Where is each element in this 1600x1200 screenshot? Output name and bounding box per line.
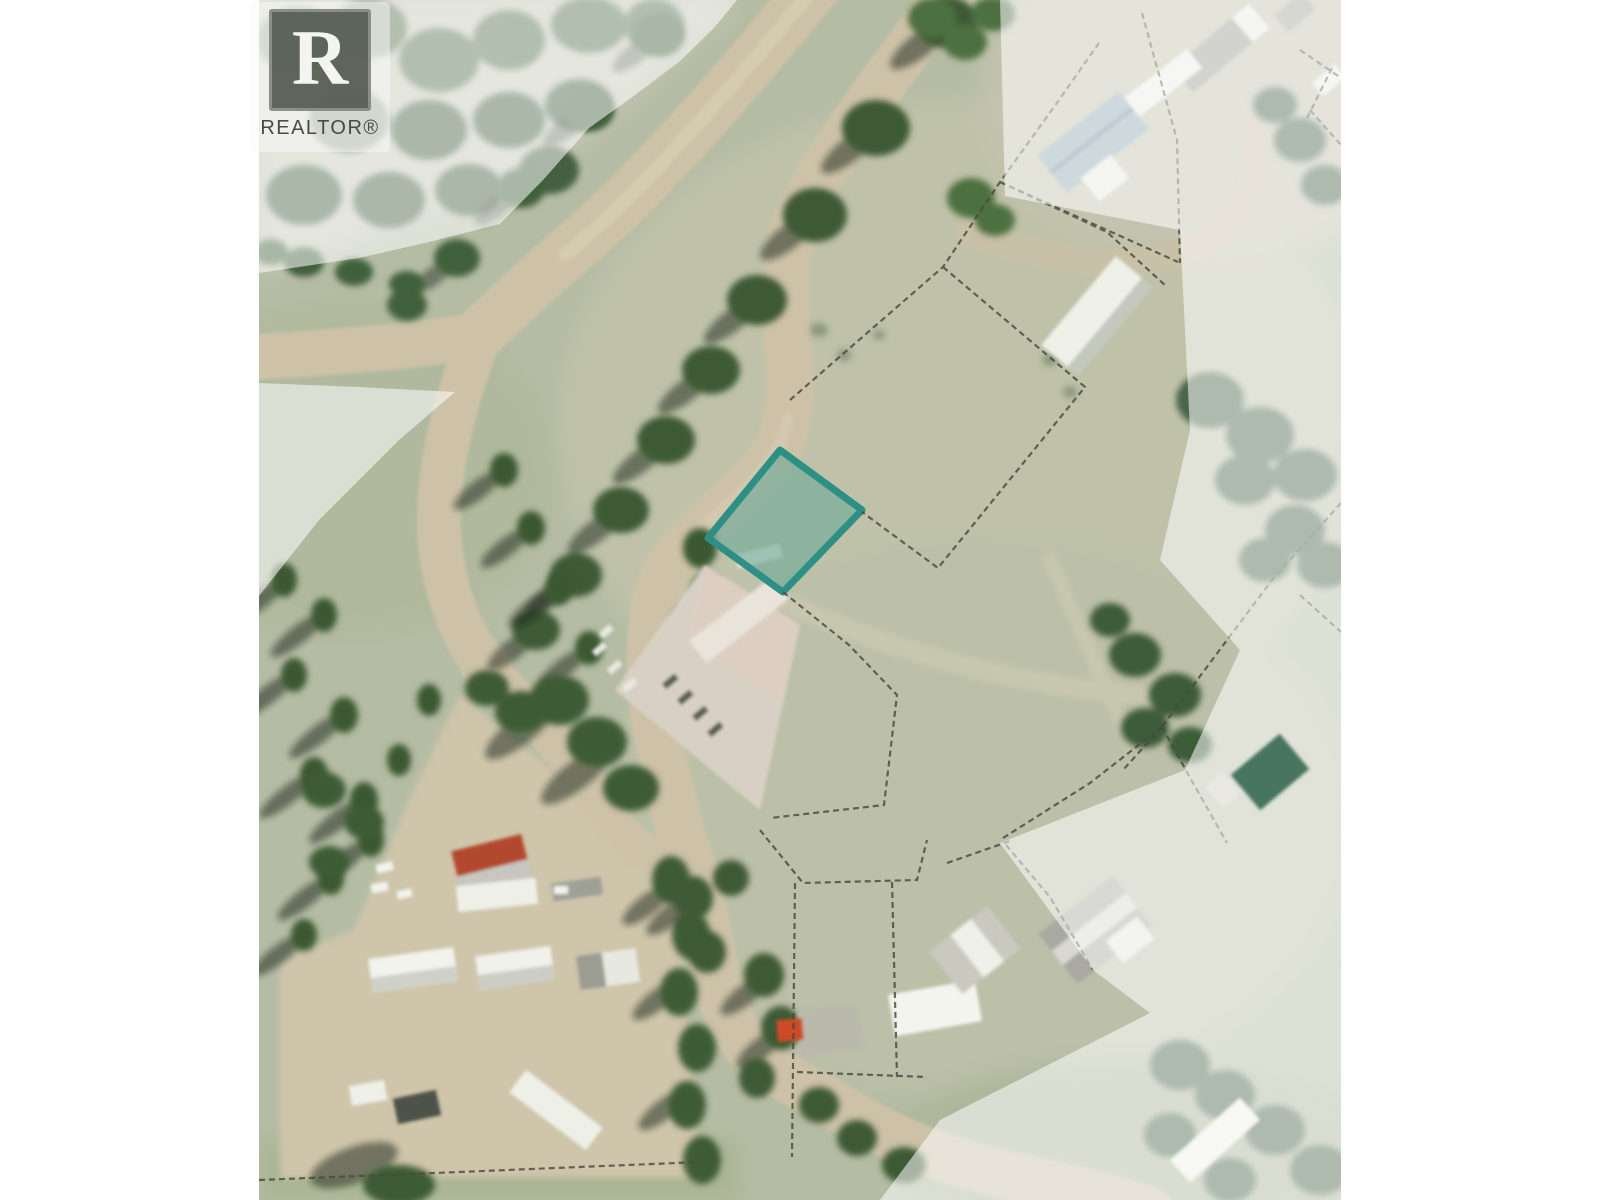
realtor-logo-icon: R: [269, 9, 371, 111]
realtor-watermark: R REALTOR®: [250, 2, 390, 152]
realtor-label: REALTOR®: [260, 117, 379, 140]
realtor-logo-letter: R: [292, 19, 348, 97]
aerial-map[interactable]: [259, 0, 1341, 1200]
aerial-map-canvas: [259, 0, 1341, 1200]
screenshot-stage: R REALTOR®: [0, 0, 1600, 1200]
